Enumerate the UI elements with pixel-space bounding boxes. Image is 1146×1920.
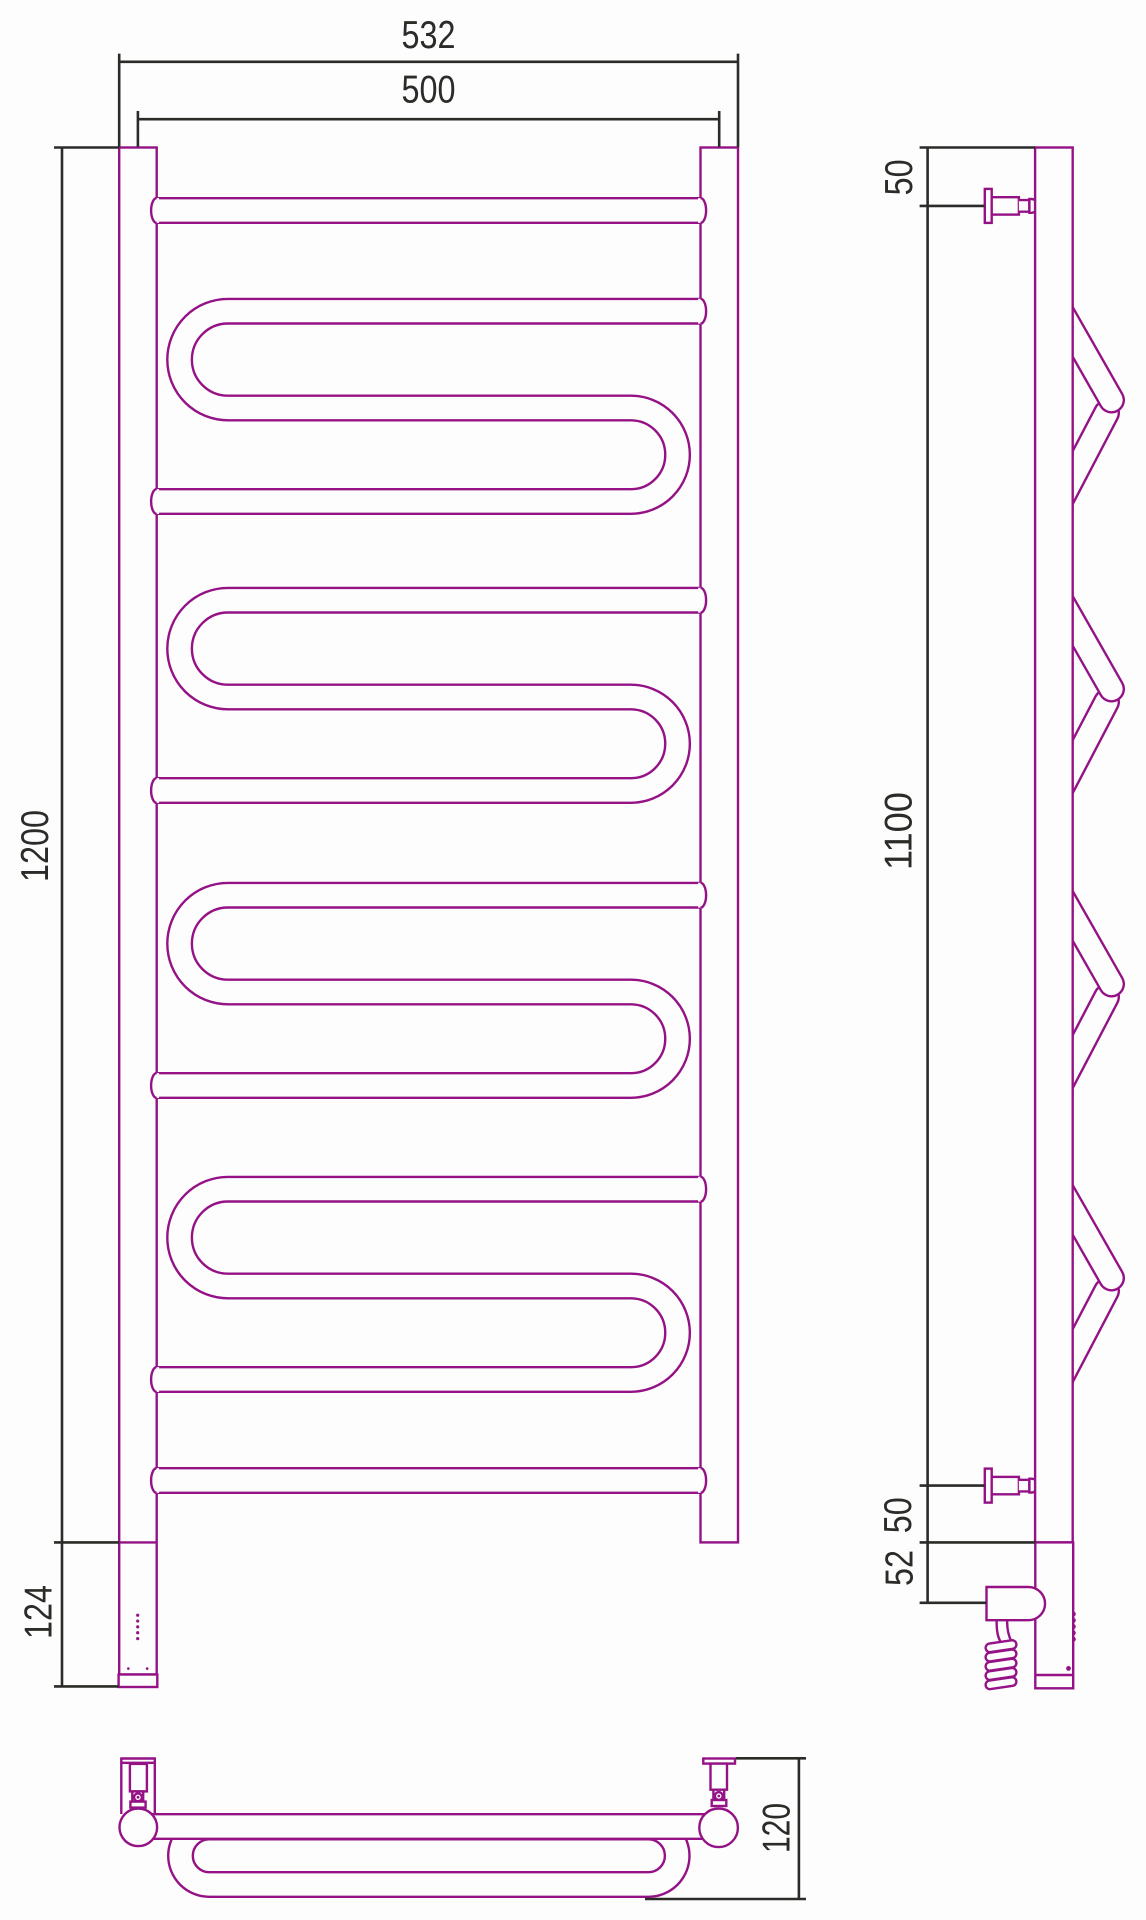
svg-text:50: 50 (877, 1497, 920, 1533)
svg-text:124: 124 (18, 1585, 61, 1639)
svg-text:52: 52 (879, 1550, 922, 1586)
svg-text:120: 120 (756, 1803, 799, 1853)
svg-text:50: 50 (878, 159, 921, 195)
svg-text:1100: 1100 (877, 792, 920, 870)
svg-text:500: 500 (402, 69, 456, 112)
svg-text:532: 532 (402, 14, 456, 57)
svg-text:1200: 1200 (14, 810, 57, 882)
